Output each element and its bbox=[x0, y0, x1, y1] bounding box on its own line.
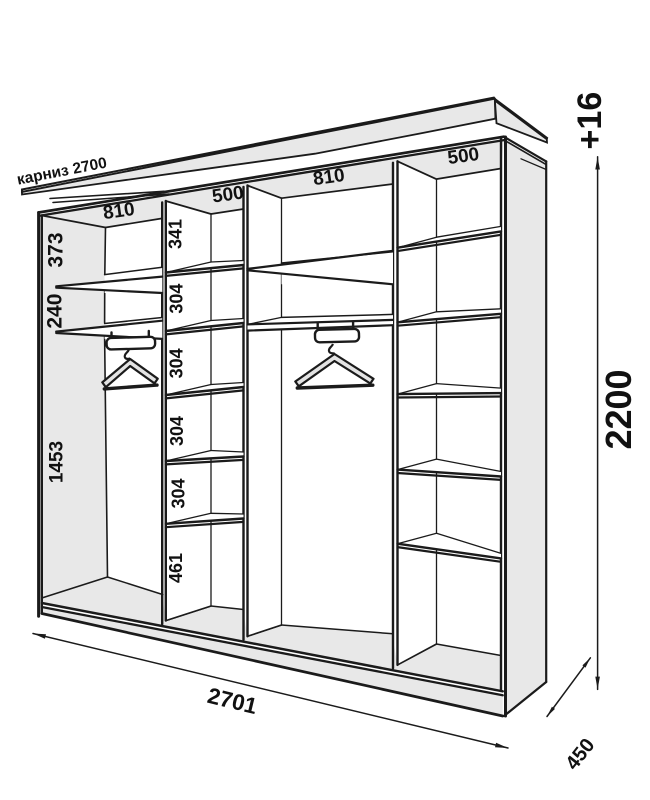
svg-text:2200: 2200 bbox=[598, 369, 639, 449]
svg-text:810: 810 bbox=[102, 199, 136, 224]
svg-text:304: 304 bbox=[167, 348, 187, 378]
svg-text:500: 500 bbox=[446, 144, 480, 169]
svg-text:304: 304 bbox=[167, 416, 187, 446]
svg-text:461: 461 bbox=[166, 553, 186, 583]
svg-text:304: 304 bbox=[167, 284, 187, 314]
svg-text:1453: 1453 bbox=[47, 441, 68, 483]
svg-text:500: 500 bbox=[211, 182, 245, 207]
svg-text:304: 304 bbox=[168, 478, 188, 508]
svg-text:341: 341 bbox=[165, 219, 185, 249]
svg-text:+16: +16 bbox=[571, 92, 609, 150]
svg-text:810: 810 bbox=[312, 165, 346, 190]
svg-text:373: 373 bbox=[44, 232, 67, 267]
svg-text:240: 240 bbox=[43, 294, 66, 329]
